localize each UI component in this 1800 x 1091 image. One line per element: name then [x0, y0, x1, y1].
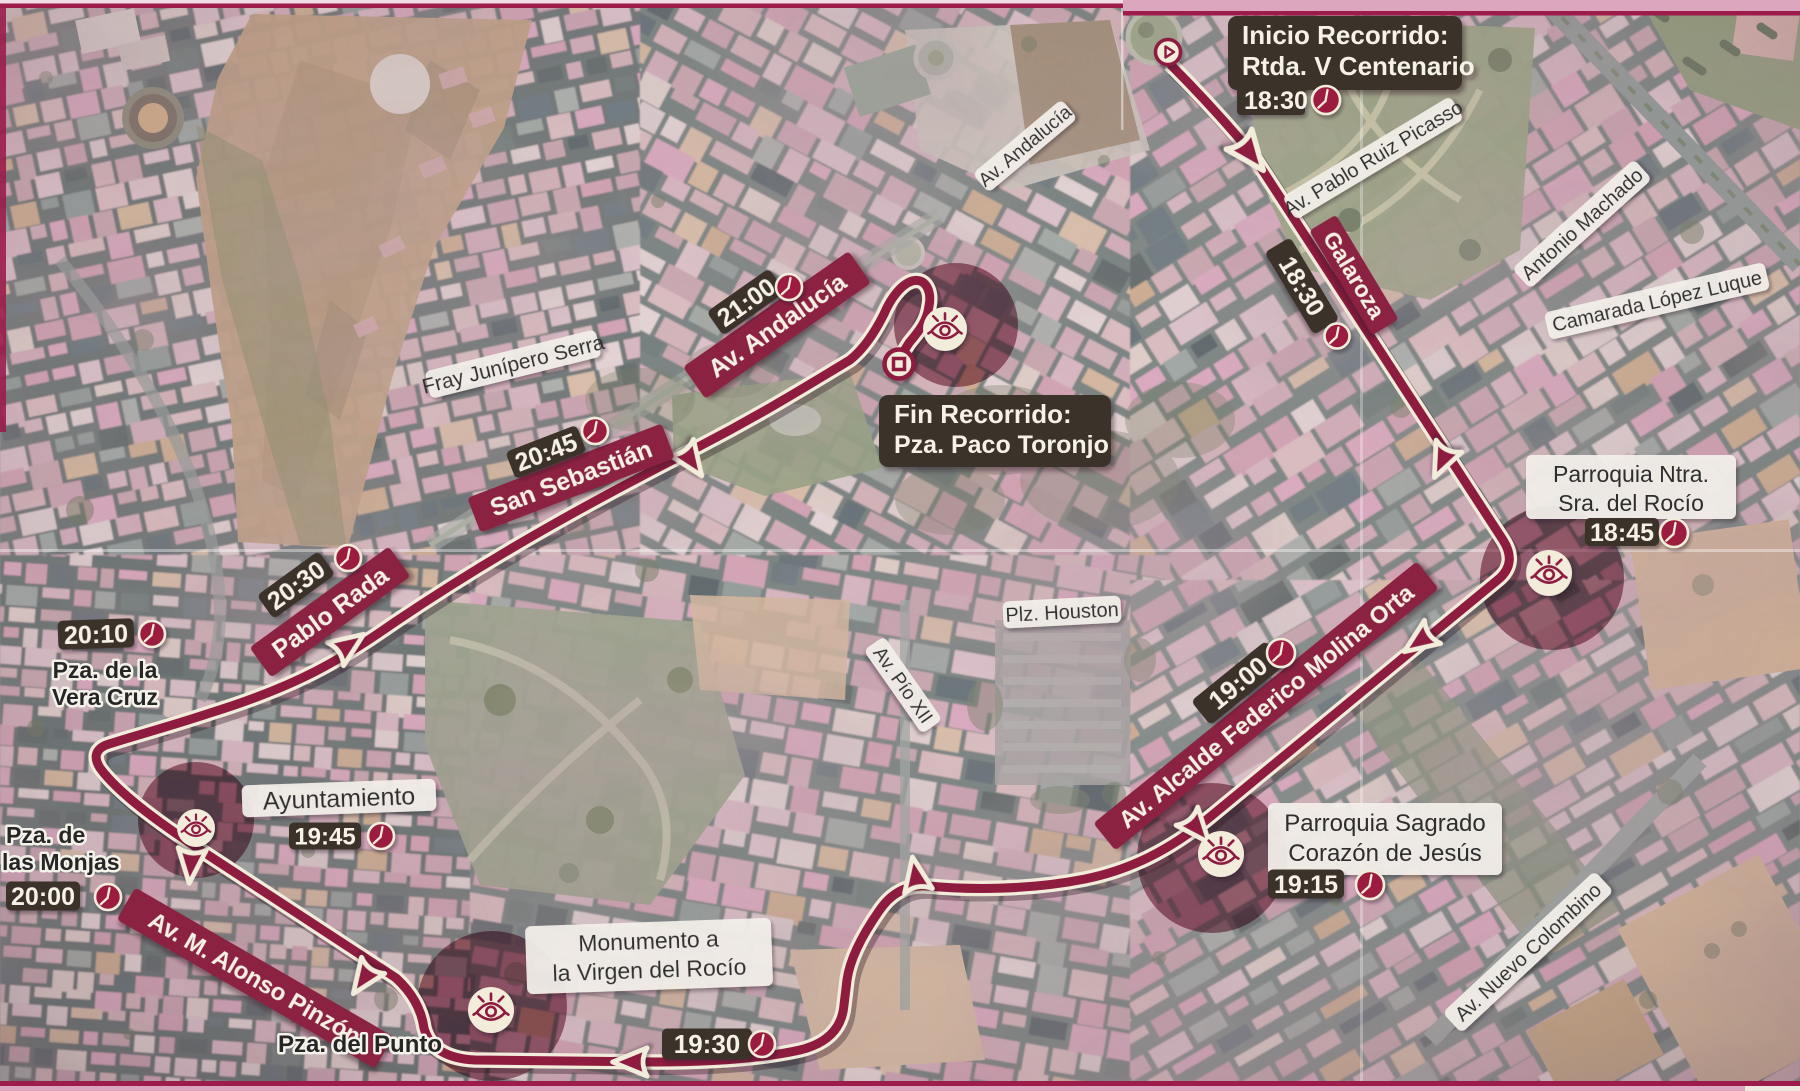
svg-text:18:45: 18:45: [1590, 519, 1654, 547]
svg-text:20:10: 20:10: [64, 620, 129, 650]
svg-text:Parroquia Ntra.: Parroquia Ntra.: [1553, 461, 1709, 487]
svg-text:Fin Recorrido:: Fin Recorrido:: [894, 399, 1072, 429]
svg-text:las Monjas: las Monjas: [2, 849, 120, 875]
svg-text:Pza. de la: Pza. de la: [53, 657, 158, 683]
svg-text:19:30: 19:30: [674, 1029, 741, 1059]
svg-text:20:00: 20:00: [11, 883, 75, 911]
svg-text:Pza. Paco Toronjo: Pza. Paco Toronjo: [894, 431, 1109, 459]
svg-text:18:30: 18:30: [1244, 87, 1308, 115]
svg-text:Rtda. V Centenario: Rtda. V Centenario: [1242, 51, 1475, 81]
svg-text:Pza. del Punto: Pza. del Punto: [278, 1031, 442, 1058]
svg-text:Monumento a: Monumento a: [578, 926, 720, 957]
svg-text:Ayuntamiento: Ayuntamiento: [262, 782, 415, 815]
svg-text:Corazón de Jesús: Corazón de Jesús: [1288, 840, 1481, 867]
svg-text:Inicio Recorrido:: Inicio Recorrido:: [1242, 20, 1449, 50]
svg-text:Vera Cruz: Vera Cruz: [52, 684, 158, 710]
svg-text:Sra. del Rocío: Sra. del Rocío: [1558, 490, 1704, 516]
svg-text:19:45: 19:45: [294, 823, 355, 850]
svg-text:19:15: 19:15: [1274, 871, 1338, 899]
svg-text:Parroquia Sagrado: Parroquia Sagrado: [1284, 810, 1485, 837]
svg-text:Pza. de: Pza. de: [6, 822, 85, 848]
